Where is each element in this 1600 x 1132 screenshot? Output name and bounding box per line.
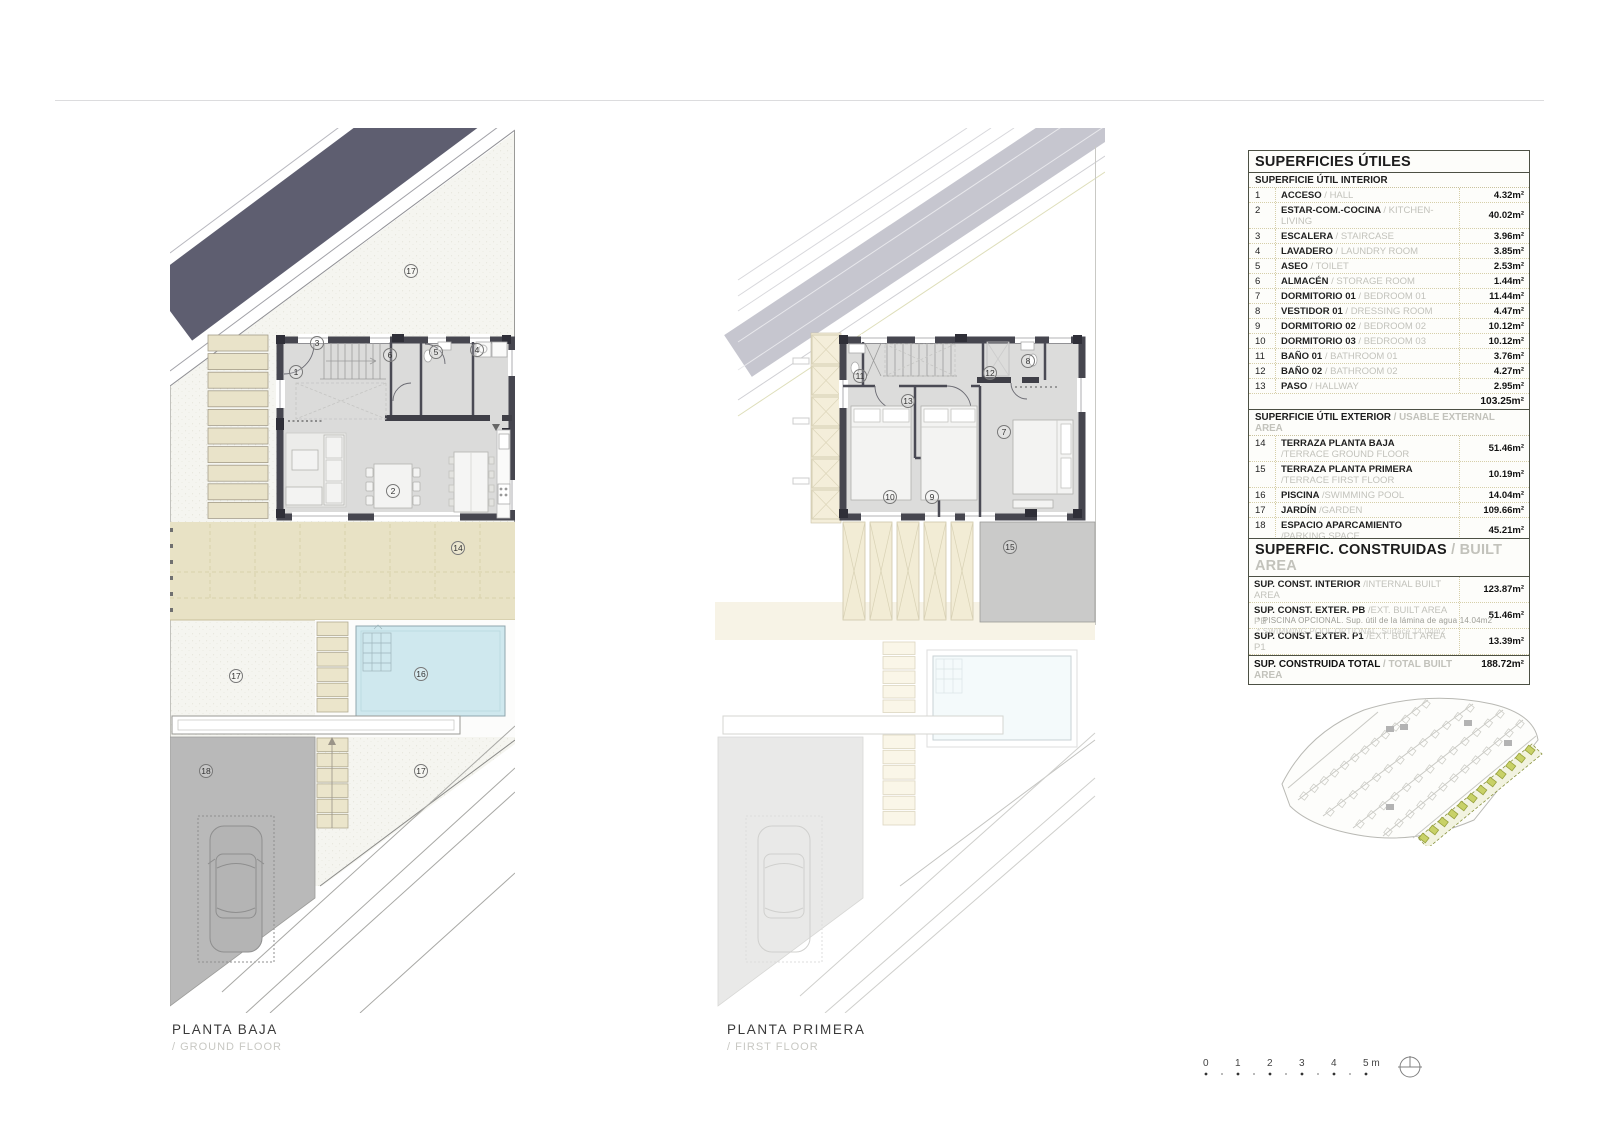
- row-number: 10: [1249, 334, 1276, 348]
- row-label: ALMACÉN / STORAGE ROOM: [1276, 274, 1459, 288]
- row-value: 2.95m²: [1459, 379, 1529, 393]
- row-number: 5: [1249, 259, 1276, 273]
- table-row: 9DORMITORIO 02 / BEDROOM 0210.12m²: [1249, 319, 1529, 334]
- row-label: ESTAR-COM.-COCINA / KITCHEN-LIVING: [1276, 203, 1459, 228]
- interior-subtotal: 103.25m²: [1249, 394, 1529, 410]
- area-label-aparcamiento: 18: [199, 764, 213, 778]
- table-row: SUP. CONST. INTERIOR /INTERNAL BUILT ARE…: [1249, 577, 1529, 603]
- ground-floor-plan: [170, 128, 515, 1013]
- caption-en: / GROUND FLOOR: [172, 1041, 282, 1053]
- room-label-bano02: 12: [983, 366, 997, 380]
- scale-tick: 3: [1299, 1058, 1305, 1069]
- row-number: 2: [1249, 203, 1276, 228]
- row-label: DORMITORIO 01 / BEDROOM 01: [1276, 289, 1459, 303]
- footnote-en: * SWIMMING POOL OPTIONAL. Surface 14.04m…: [1257, 627, 1445, 636]
- table-row: 1ACCESO / HALL4.32m²: [1249, 188, 1529, 203]
- caption-es: PLANTA PRIMERA: [727, 1022, 865, 1037]
- total-label: SUP. CONSTRUIDA TOTAL / TOTAL BUILT AREA: [1254, 659, 1481, 681]
- row-number: 16: [1249, 488, 1276, 502]
- row-label: JARDÍN /GARDEN: [1276, 503, 1459, 517]
- row-label: LAVADERO / LAUNDRY ROOM: [1276, 244, 1459, 258]
- caption-en: / FIRST FLOOR: [727, 1041, 865, 1053]
- scale-tick: 4: [1331, 1058, 1337, 1069]
- row-number: 3: [1249, 229, 1276, 243]
- row-label: DORMITORIO 02 / BEDROOM 02: [1276, 319, 1459, 333]
- interior-header: SUPERFICIE ÚTIL INTERIOR: [1249, 173, 1529, 188]
- scale-bar: 0 1 2 3 4 5 m: [1200, 1050, 1440, 1084]
- table-row: 4LAVADERO / LAUNDRY ROOM3.85m²: [1249, 244, 1529, 259]
- row-value: 2.53m²: [1459, 259, 1529, 273]
- area-label-piscina: 16: [414, 667, 428, 681]
- room-label-dorm01: 7: [997, 425, 1011, 439]
- total-value: 188.72m²: [1481, 659, 1524, 681]
- room-label-paso: 13: [901, 394, 915, 408]
- row-value: 4.47m²: [1459, 304, 1529, 318]
- row-number: 7: [1249, 289, 1276, 303]
- built-title-es: SUPERFIC. CONSTRUIDAS: [1255, 542, 1447, 558]
- scale-tick: 0: [1203, 1058, 1209, 1069]
- table-row: 14TERRAZA PLANTA BAJA /TERRACE GROUND FL…: [1249, 436, 1529, 462]
- row-value: 13.39m²: [1459, 629, 1529, 654]
- table-row: 7DORMITORIO 01 / BEDROOM 0111.44m²: [1249, 289, 1529, 304]
- room-label-escalera: 3: [310, 336, 324, 350]
- first-floor-plan: [715, 128, 1105, 1013]
- row-label: SUP. CONST. INTERIOR /INTERNAL BUILT ARE…: [1249, 577, 1459, 602]
- scale-tick: 2: [1267, 1058, 1273, 1069]
- plan-sheet: 1 3 6 5 4 2 17 14 17 16 18 17 11 12 8 13…: [0, 0, 1600, 1132]
- row-number: 9: [1249, 319, 1276, 333]
- north-arrow-icon: [1398, 1056, 1422, 1077]
- row-value: 3.85m²: [1459, 244, 1529, 258]
- site-key-map: [1268, 688, 1548, 846]
- row-label: ESCALERA / STAIRCASE: [1276, 229, 1459, 243]
- table-title: SUPERFIC. CONSTRUIDAS / BUILT AREA: [1249, 539, 1529, 577]
- row-value: 4.27m²: [1459, 364, 1529, 378]
- row-value: 10.19m²: [1459, 462, 1529, 487]
- table-row: 12BAÑO 02 / BATHROOM 024.27m²: [1249, 364, 1529, 379]
- row-number: 15: [1249, 462, 1276, 487]
- row-number: 6: [1249, 274, 1276, 288]
- room-label-estar: 2: [386, 484, 400, 498]
- row-value: 109.66m²: [1459, 503, 1529, 517]
- row-value: 4.32m²: [1459, 188, 1529, 202]
- table-title: SUPERFICIES ÚTILES: [1249, 151, 1529, 173]
- exterior-header: SUPERFICIE ÚTIL EXTERIOR / USABLE EXTERN…: [1249, 410, 1529, 436]
- row-number: 11: [1249, 349, 1276, 363]
- row-value: 11.44m²: [1459, 289, 1529, 303]
- row-value: 40.02m²: [1459, 203, 1529, 228]
- row-label: BAÑO 01 / BATHROOM 01: [1276, 349, 1459, 363]
- table-row: 2ESTAR-COM.-COCINA / KITCHEN-LIVING40.02…: [1249, 203, 1529, 229]
- room-label-lavadero: 4: [470, 343, 484, 357]
- row-value: 123.87m²: [1459, 577, 1529, 602]
- row-value: 14.04m²: [1459, 488, 1529, 502]
- room-label-bano01: 11: [853, 369, 867, 383]
- row-number: 1: [1249, 188, 1276, 202]
- row-label: DORMITORIO 03 / BEDROOM 03: [1276, 334, 1459, 348]
- row-value: 1.44m²: [1459, 274, 1529, 288]
- room-label-dorm03: 10: [883, 490, 897, 504]
- row-number: 14: [1249, 436, 1276, 461]
- area-label-jardin-top: 17: [404, 264, 418, 278]
- area-label-terraza-pb: 14: [451, 541, 465, 555]
- exterior-header-es: SUPERFICIE ÚTIL EXTERIOR: [1255, 412, 1391, 423]
- area-label-terraza-p1: 15: [1003, 540, 1017, 554]
- row-label: TERRAZA PLANTA BAJA /TERRACE GROUND FLOO…: [1276, 436, 1459, 461]
- row-value: 51.46m²: [1459, 436, 1529, 461]
- table-row: 5ASEO / TOILET2.53m²: [1249, 259, 1529, 274]
- table-row: 11BAÑO 01 / BATHROOM 013.76m²: [1249, 349, 1529, 364]
- row-value: 10.12m²: [1459, 334, 1529, 348]
- row-label: ACCESO / HALL: [1276, 188, 1459, 202]
- top-rule: [55, 100, 1544, 101]
- row-number: 4: [1249, 244, 1276, 258]
- row-label: VESTIDOR 01 / DRESSING ROOM: [1276, 304, 1459, 318]
- row-label: BAÑO 02 / BATHROOM 02: [1276, 364, 1459, 378]
- table-row: 13PASO / HALLWAY2.95m²: [1249, 379, 1529, 394]
- ground-floor-caption: PLANTA BAJA / GROUND FLOOR: [172, 1022, 282, 1053]
- table-row: 10DORMITORIO 03 / BEDROOM 0310.12m²: [1249, 334, 1529, 349]
- row-value: 10.12m²: [1459, 319, 1529, 333]
- table-row: 6ALMACÉN / STORAGE ROOM1.44m²: [1249, 274, 1529, 289]
- row-value: 3.96m²: [1459, 229, 1529, 243]
- table-row: 3ESCALERA / STAIRCASE3.96m²: [1249, 229, 1529, 244]
- scale-tick: 1: [1235, 1058, 1241, 1069]
- row-number: 13: [1249, 379, 1276, 393]
- row-value: 3.76m²: [1459, 349, 1529, 363]
- room-label-vestidor: 8: [1021, 354, 1035, 368]
- area-label-jardin-mid: 17: [229, 669, 243, 683]
- caption-es: PLANTA BAJA: [172, 1022, 278, 1037]
- usable-areas-table: SUPERFICIES ÚTILES SUPERFICIE ÚTIL INTER…: [1248, 150, 1530, 589]
- room-label-aseo: 5: [429, 345, 443, 359]
- row-label: ASEO / TOILET: [1276, 259, 1459, 273]
- row-label: TERRAZA PLANTA PRIMERA /TERRACE FIRST FL…: [1276, 462, 1459, 487]
- row-label: PASO / HALLWAY: [1276, 379, 1459, 393]
- row-number: 8: [1249, 304, 1276, 318]
- table-row: 16PISCINA /SWIMMING POOL14.04m²: [1249, 488, 1529, 503]
- row-number: 12: [1249, 364, 1276, 378]
- table-row: 15TERRAZA PLANTA PRIMERA /TERRACE FIRST …: [1249, 462, 1529, 488]
- row-label: PISCINA /SWIMMING POOL: [1276, 488, 1459, 502]
- built-total-row: SUP. CONSTRUIDA TOTAL / TOTAL BUILT AREA…: [1249, 655, 1529, 684]
- room-label-dorm02: 9: [925, 490, 939, 504]
- table-row: 17JARDÍN /GARDEN109.66m²: [1249, 503, 1529, 518]
- table-row: 8VESTIDOR 01 / DRESSING ROOM4.47m²: [1249, 304, 1529, 319]
- area-label-jardin-bottom: 17: [414, 764, 428, 778]
- built-areas-table: SUPERFIC. CONSTRUIDAS / BUILT AREA SUP. …: [1248, 538, 1530, 685]
- first-floor-caption: PLANTA PRIMERA / FIRST FLOOR: [727, 1022, 865, 1053]
- footnote-es: * PISCINA OPCIONAL. Sup. útil de la lámi…: [1257, 616, 1492, 625]
- room-label-acceso: 1: [289, 365, 303, 379]
- room-label-almacen: 6: [383, 348, 397, 362]
- row-number: 17: [1249, 503, 1276, 517]
- scale-tick: 5 m: [1363, 1058, 1380, 1069]
